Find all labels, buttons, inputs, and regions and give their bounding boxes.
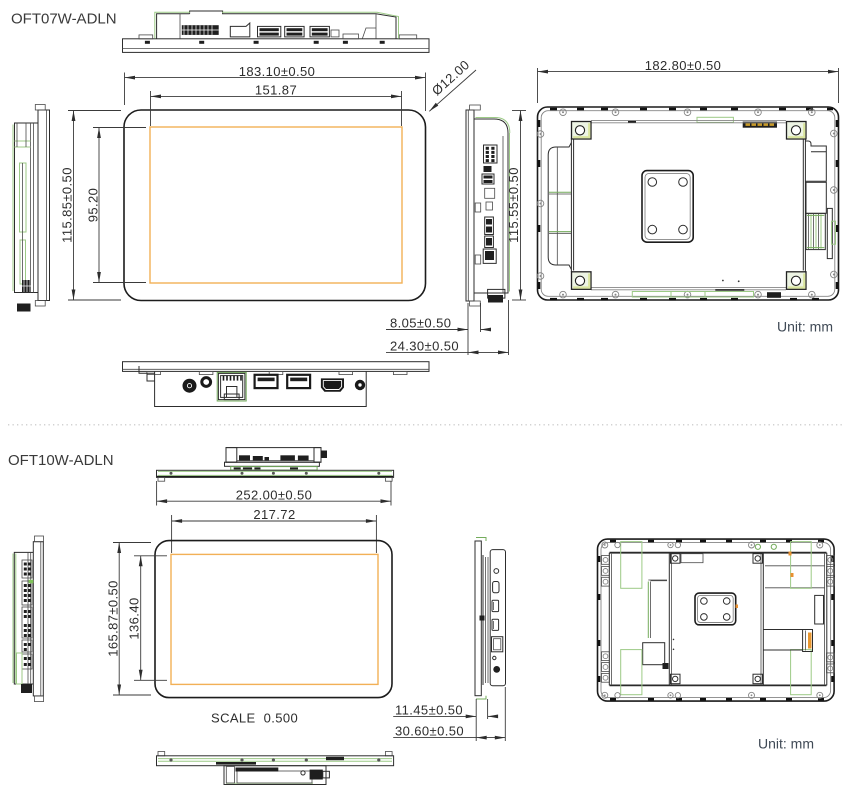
svg-text:30.60±0.50: 30.60±0.50 — [395, 724, 464, 739]
svg-text:Unit: mm: Unit: mm — [777, 319, 833, 335]
svg-text:24.30±0.50: 24.30±0.50 — [390, 339, 459, 354]
svg-text:151.87: 151.87 — [255, 83, 297, 98]
svg-text:165.87±0.50: 165.87±0.50 — [106, 580, 121, 657]
svg-text:115.85±0.50: 115.85±0.50 — [60, 167, 75, 243]
svg-text:182.80±0.50: 182.80±0.50 — [645, 58, 722, 73]
svg-text:183.10±0.50: 183.10±0.50 — [239, 64, 316, 79]
svg-text:136.40: 136.40 — [127, 597, 142, 639]
svg-text:11.45±0.50: 11.45±0.50 — [395, 703, 463, 718]
svg-text:252.00±0.50: 252.00±0.50 — [236, 487, 313, 502]
svg-text:OFT10W-ADLN: OFT10W-ADLN — [8, 452, 114, 469]
svg-text:217.72: 217.72 — [253, 507, 295, 522]
svg-text:SCALE 0.500: SCALE 0.500 — [211, 711, 298, 726]
svg-text:Unit: mm: Unit: mm — [758, 736, 814, 752]
svg-text:8.05±0.50: 8.05±0.50 — [390, 316, 451, 331]
svg-text:115.55±0.50: 115.55±0.50 — [506, 167, 521, 243]
svg-text:95.20: 95.20 — [86, 188, 101, 223]
svg-text:OFT07W-ADLN: OFT07W-ADLN — [11, 11, 117, 28]
